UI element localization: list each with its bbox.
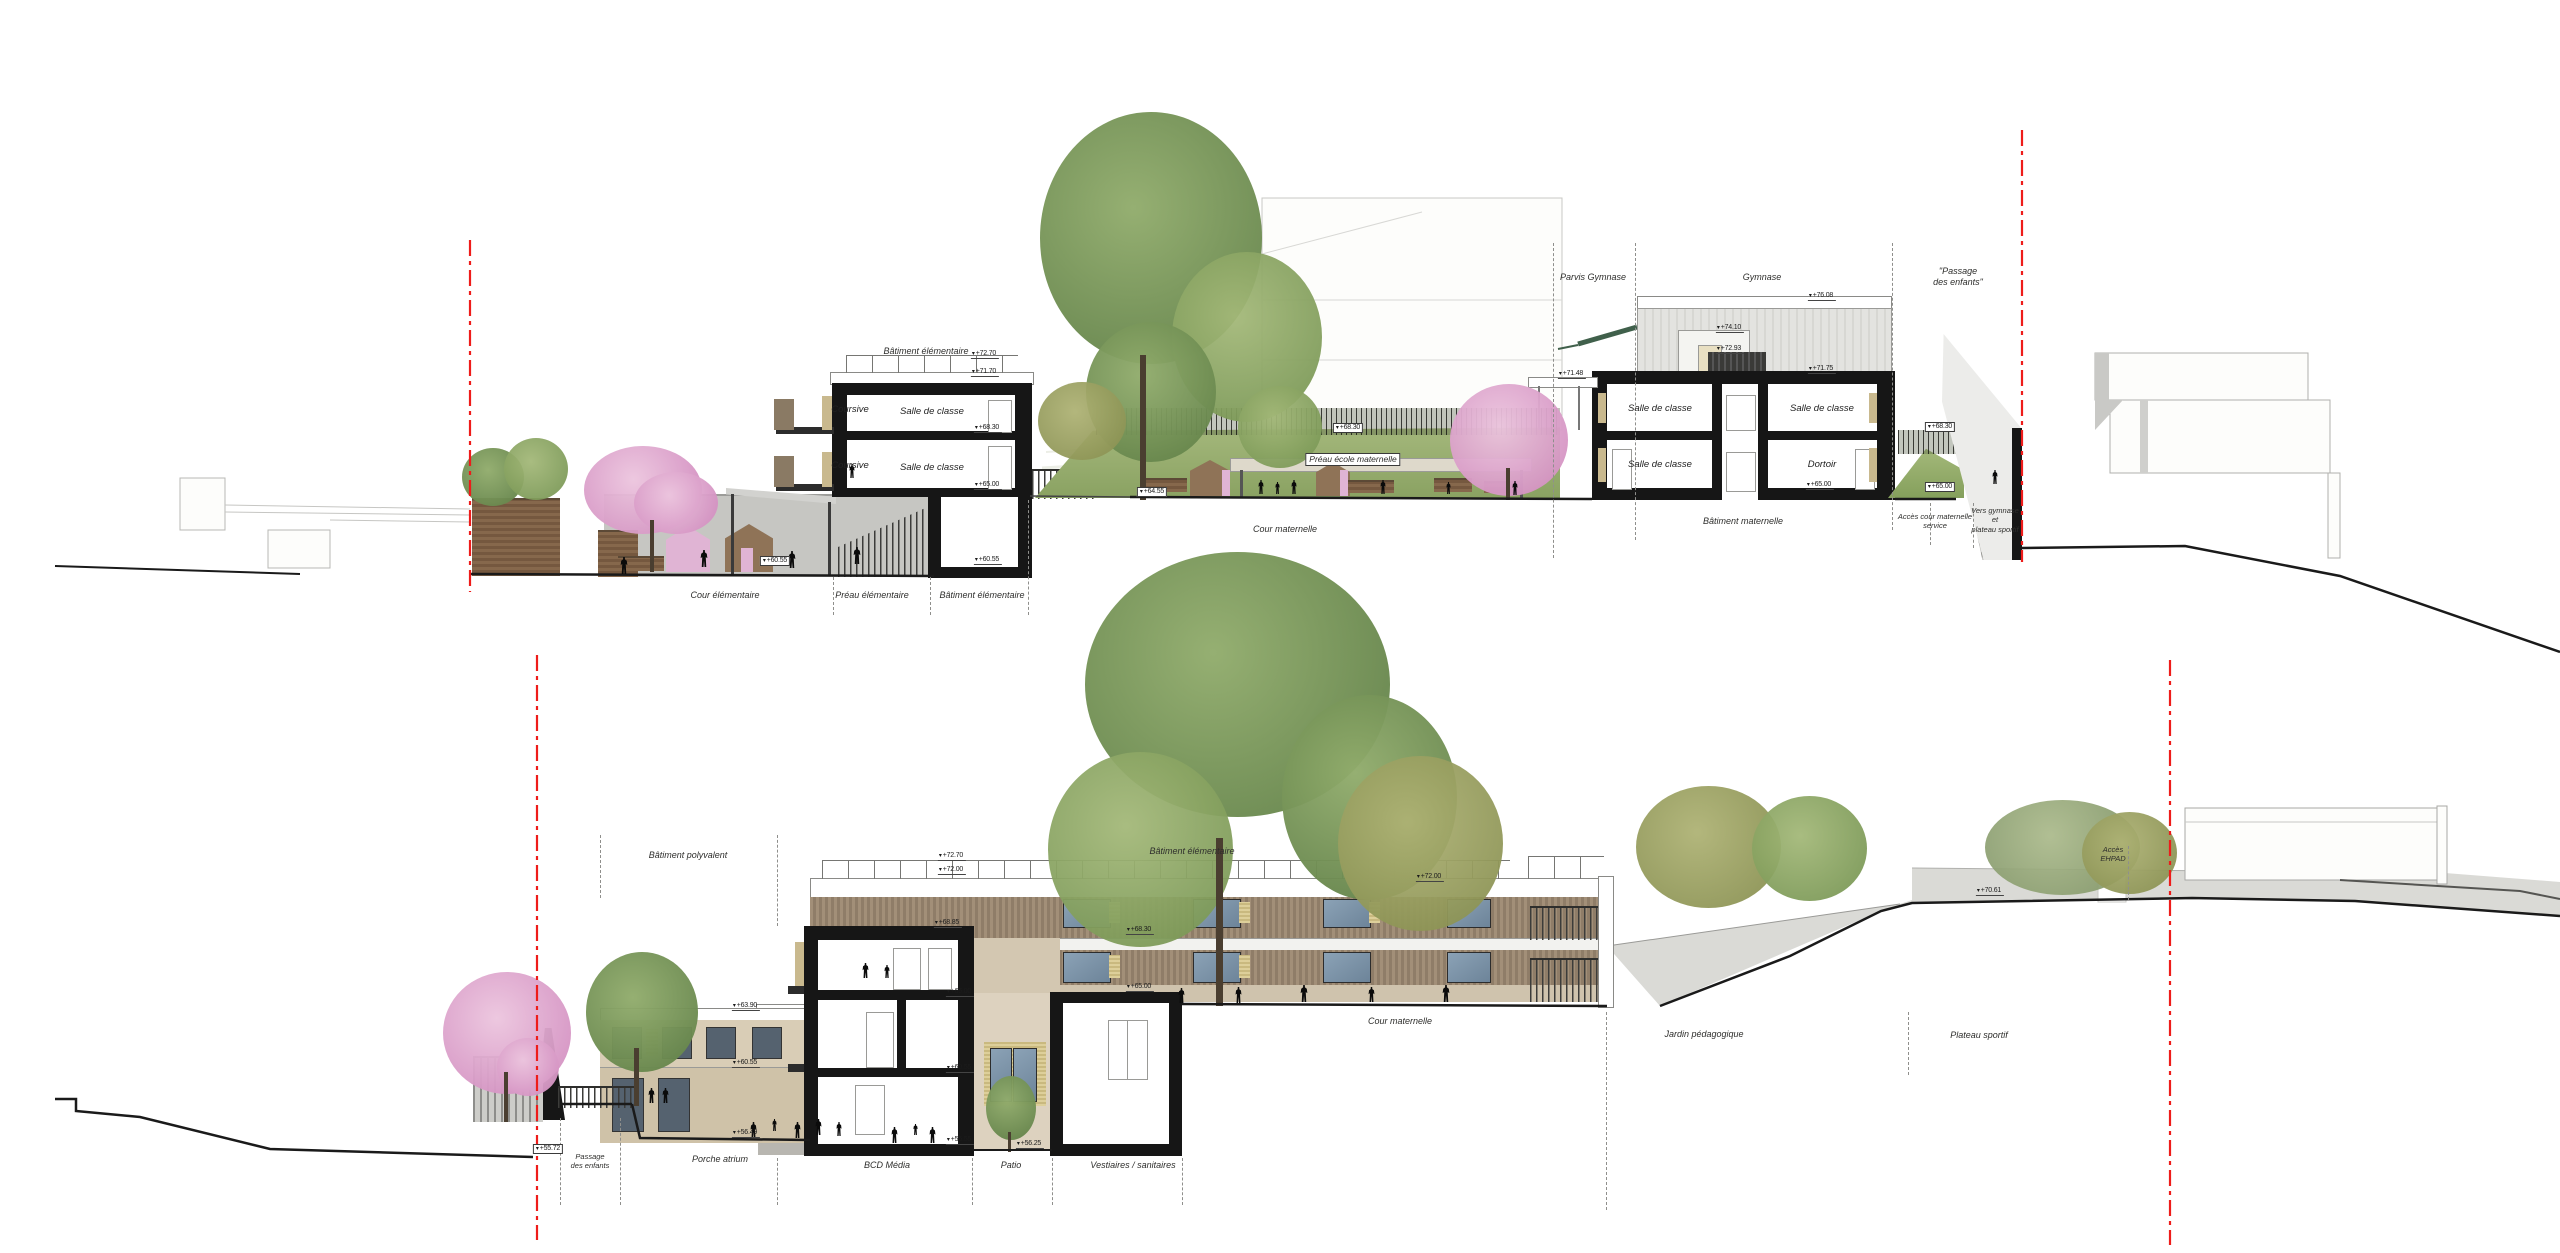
zone-label: Accès cour maternelle service [1898,512,1972,531]
elevation-marker: +65.00 [1126,983,1154,992]
elevation-marker: +60.55 [974,556,1002,565]
zone-separator [1635,243,1636,540]
person-silhouette [1235,987,1242,1003]
zone-label: Bâtiment élémentaire [883,346,968,357]
elevation-marker: +56.49 [732,1129,760,1138]
elevation-marker: +72.00 [1416,873,1444,882]
person-silhouette [1291,480,1297,494]
person-silhouette [700,550,708,567]
elevation-marker: +70.61 [1976,887,2004,896]
zone-label: Préau école maternelle [1305,453,1400,466]
person-silhouette [929,1127,936,1143]
elevation-marker: +65.00 [946,988,974,997]
zone-label: Bâtiment élémentaire [939,590,1024,601]
person-silhouette [1380,480,1386,494]
zone-label: Porche atrium [692,1154,748,1165]
zone-label: Accès EHPAD [2100,845,2125,864]
person-silhouette [1178,988,1185,1003]
zone-separator [930,577,931,615]
architectural-sections-canvas: Cour élémentairePréau élémentaireBâtimen… [0,0,2560,1253]
person-silhouette [648,1088,655,1103]
room-label: Coursive [831,404,869,415]
zone-separator [1182,1158,1183,1205]
zone-label: Bâtiment élémentaire [1149,846,1234,857]
elevation-marker: +76.08 [1808,292,1836,301]
person-silhouette [836,1122,842,1136]
elevation-marker: +71.48 [1558,370,1586,379]
person-silhouette [1512,481,1518,495]
room-label: Salle de classe [900,462,964,473]
elevation-marker: +72.70 [971,350,999,359]
zone-separator [560,1118,561,1205]
elevation-marker: +68.30 [1925,422,1955,432]
zone-separator [1908,1012,1909,1075]
person-silhouette [662,1088,669,1103]
room-label: Salle de classe [1628,459,1692,470]
zone-separator [600,835,601,898]
room-label: Salle de classe [1628,403,1692,414]
elevation-marker: +56.55 [946,1136,974,1145]
zone-label: Plateau sportif [1950,1030,2008,1041]
person-silhouette [913,1124,918,1135]
person-silhouette [1992,470,1998,484]
room-label: Salle de classe [900,406,964,417]
elevation-marker: +72.00 [938,866,966,875]
elevation-marker: +68.30 [1126,926,1154,935]
elevation-marker: +71.70 [971,368,999,377]
person-silhouette [794,1122,801,1138]
person-silhouette [620,557,628,574]
person-silhouette [1275,482,1280,494]
elevation-marker: +72.70 [938,852,966,861]
zone-label: Vers gymnase et plateau sportif [1971,506,2019,534]
elevation-marker: +74.10 [1716,324,1744,333]
elevation-marker: +68.30 [1333,423,1363,433]
elevation-marker: +55.72 [533,1144,563,1154]
zone-label: Cour maternelle [1253,524,1317,535]
elevation-marker: +71.75 [1808,365,1836,374]
person-silhouette [1446,482,1451,494]
zone-separator [1028,500,1029,615]
elevation-marker: +60.55 [760,556,790,566]
zone-label: Préau élémentaire [835,590,909,601]
elevation-marker: +60.55 [732,1059,760,1068]
zone-label: Cour élémentaire [690,590,759,601]
zone-separator [1606,1012,1607,1210]
elevation-marker: +56.25 [1016,1140,1044,1149]
zone-label: Cour maternelle [1368,1016,1432,1027]
zone-label: Bâtiment polyvalent [649,850,728,861]
zone-separator [1553,243,1554,558]
zone-separator [2128,846,2129,900]
person-silhouette [884,965,890,978]
person-silhouette [862,963,869,978]
zone-separator [833,577,834,615]
elevation-marker: +72.93 [1716,345,1744,354]
person-silhouette [1442,985,1450,1002]
zone-label: "Passage des enfants" [1933,266,1983,289]
zone-label: Bâtiment maternelle [1703,516,1783,527]
elevation-marker: +68.85 [934,919,962,928]
zone-label: BCD Média [864,1160,910,1171]
zone-separator [1892,243,1893,530]
person-silhouette [1300,985,1308,1002]
room-label: Coursive [831,460,869,471]
elevation-marker: +63.90 [732,1002,760,1011]
room-label: Salle de classe [1790,403,1854,414]
person-silhouette [1258,480,1264,494]
elevation-marker: +68.30 [974,424,1002,433]
elevation-marker: +65.00 [1806,481,1834,490]
elevation-marker: +65.00 [974,481,1002,490]
zone-label: Gymnase [1743,272,1782,283]
zone-label: Vestiaires / sanitaires [1090,1160,1175,1171]
room-label: Dortoir [1808,459,1837,470]
annotation-layer: Cour élémentairePréau élémentaireBâtimen… [0,0,2560,1253]
person-silhouette [853,547,861,564]
zone-label: Jardin pédagogique [1664,1029,1743,1040]
zone-separator [777,1158,778,1205]
zone-label: Parvis Gymnase [1560,272,1626,283]
elevation-marker: +64.55 [1137,487,1167,497]
person-silhouette [891,1127,898,1143]
zone-label: Passage des enfants [571,1152,610,1171]
person-silhouette [772,1119,777,1131]
elevation-marker: +65.00 [1925,482,1955,492]
zone-separator [620,1118,621,1205]
zone-label: Patio [1001,1160,1022,1171]
elevation-marker: +60.55 [946,1064,974,1073]
zone-separator [777,835,778,926]
zone-separator [972,1158,973,1205]
zone-separator [1052,1158,1053,1205]
person-silhouette [1368,987,1375,1002]
person-silhouette [815,1119,822,1135]
